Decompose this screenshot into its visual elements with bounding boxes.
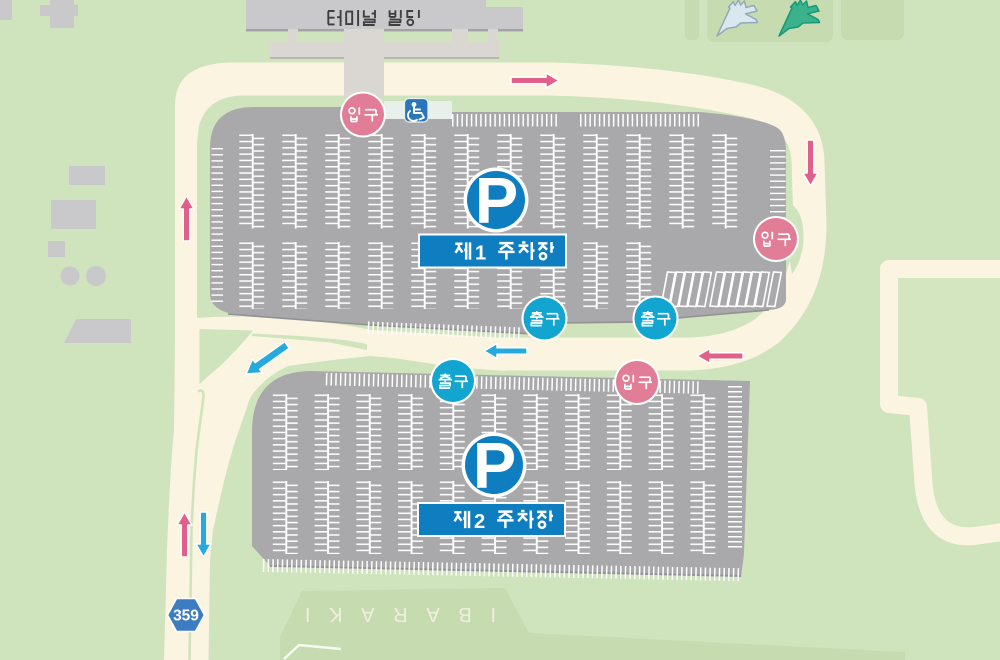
- svg-text:P: P: [475, 164, 518, 237]
- svg-text:1: 1: [475, 243, 486, 265]
- svg-text:359: 359: [173, 608, 199, 625]
- svg-text:P: P: [473, 429, 516, 502]
- svg-text:2: 2: [474, 511, 485, 533]
- svg-text:IBARAKI: IBARAKI: [286, 603, 496, 625]
